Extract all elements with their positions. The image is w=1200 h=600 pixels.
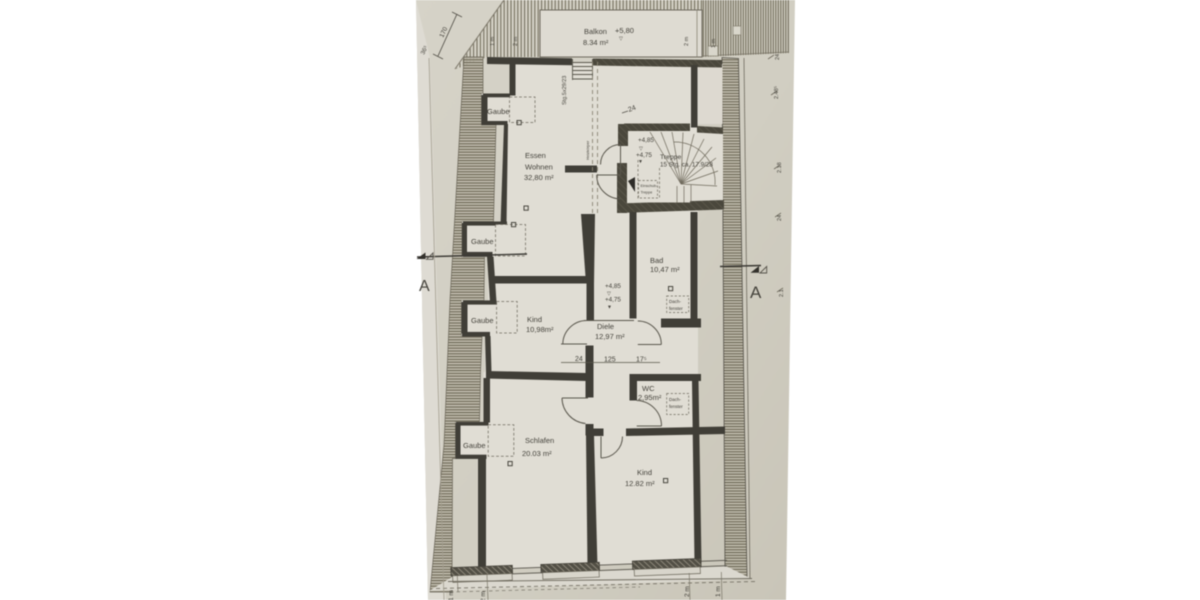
svg-text:8.34 m²: 8.34 m² xyxy=(583,38,609,47)
svg-text:12.82 m²: 12.82 m² xyxy=(625,479,655,488)
svg-text:1 m: 1 m xyxy=(490,36,496,46)
svg-text:Diele: Diele xyxy=(597,322,614,331)
svg-text:+4,85: +4,85 xyxy=(638,137,654,144)
svg-text:10,98m²: 10,98m² xyxy=(526,325,554,334)
svg-text:Kind: Kind xyxy=(637,468,652,477)
svg-text:Treppe: Treppe xyxy=(660,154,682,161)
svg-text:1 m: 1 m xyxy=(448,590,455,600)
svg-text:Stg.5x29/23: Stg.5x29/23 xyxy=(562,76,568,105)
svg-text:2 m: 2 m xyxy=(684,36,690,46)
svg-text:32,80 m²: 32,80 m² xyxy=(524,173,554,182)
svg-text:125: 125 xyxy=(604,357,616,364)
svg-text:+4,75: +4,75 xyxy=(605,297,621,304)
svg-text:17⁵: 17⁵ xyxy=(636,357,647,364)
svg-text:1 m: 1 m xyxy=(711,38,717,48)
svg-text:2 m: 2 m xyxy=(480,591,487,600)
svg-text:WC: WC xyxy=(642,384,655,393)
svg-text:Dach-: Dach- xyxy=(669,299,682,304)
svg-text:fenster: fenster xyxy=(669,404,683,409)
svg-text:Gaube: Gaube xyxy=(471,237,494,246)
svg-text:24: 24 xyxy=(775,54,781,60)
svg-text:24: 24 xyxy=(777,215,783,221)
svg-text:+4,75: +4,75 xyxy=(636,152,652,159)
svg-text:+4,85: +4,85 xyxy=(605,283,621,290)
svg-text:Gaube: Gaube xyxy=(463,441,486,450)
svg-text:2.18: 2.18 xyxy=(777,162,783,173)
svg-text:▽: ▽ xyxy=(619,36,623,42)
svg-text:Wohnen: Wohnen xyxy=(525,163,553,172)
svg-text:2 m: 2 m xyxy=(513,36,519,46)
svg-text:12,97 m²: 12,97 m² xyxy=(595,332,625,341)
svg-text:fenster: fenster xyxy=(669,306,683,311)
svg-text:15 Stg. ca. 17.9/28: 15 Stg. ca. 17.9/28 xyxy=(660,162,713,169)
svg-text:1 m: 1 m xyxy=(715,586,722,597)
svg-text:Treppe: Treppe xyxy=(641,191,653,195)
svg-text:▼: ▼ xyxy=(638,159,643,165)
svg-text:2.48⁵: 2.48⁵ xyxy=(773,86,780,99)
svg-text:+5,80: +5,80 xyxy=(615,26,634,35)
svg-text:▼: ▼ xyxy=(607,305,612,311)
svg-text:2.1: 2.1 xyxy=(779,289,785,297)
svg-text:Bad: Bad xyxy=(650,256,663,265)
svg-text:Gaube: Gaube xyxy=(471,316,494,325)
svg-text:A: A xyxy=(419,278,430,295)
svg-text:Kind: Kind xyxy=(527,315,542,324)
svg-text:Gaube: Gaube xyxy=(487,107,510,116)
svg-text:2 m: 2 m xyxy=(684,586,691,597)
svg-text:10,47 m²: 10,47 m² xyxy=(650,265,680,274)
svg-text:24: 24 xyxy=(575,356,583,363)
svg-text:A: A xyxy=(750,283,762,302)
svg-text:Essen: Essen xyxy=(525,151,546,160)
svg-text:20.03 m²: 20.03 m² xyxy=(522,449,552,458)
svg-text:Schlafen: Schlafen xyxy=(525,436,554,445)
svg-text:Heizkörper: Heizkörper xyxy=(585,140,590,160)
svg-text:Dach-: Dach- xyxy=(669,397,682,402)
svg-text:Einschub-: Einschub- xyxy=(641,184,659,188)
svg-text:Balkon: Balkon xyxy=(584,27,607,36)
